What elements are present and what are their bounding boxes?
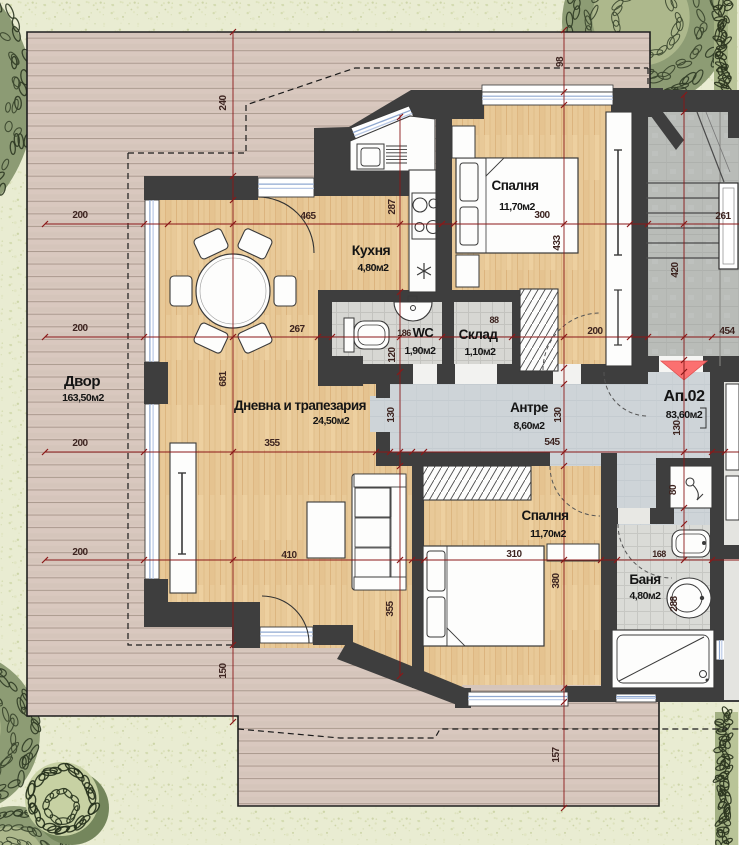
svg-text:80: 80 <box>668 484 679 495</box>
svg-text:433: 433 <box>552 234 563 250</box>
svg-text:545: 545 <box>544 437 560 448</box>
svg-text:Спалня: Спалня <box>491 178 538 193</box>
svg-text:240: 240 <box>218 94 229 110</box>
svg-text:380: 380 <box>551 572 562 588</box>
svg-text:130: 130 <box>553 406 564 422</box>
svg-text:Двор: Двор <box>64 373 100 390</box>
svg-text:267: 267 <box>289 324 305 335</box>
svg-text:150: 150 <box>218 662 229 678</box>
svg-text:4,80м2: 4,80м2 <box>629 590 661 602</box>
svg-text:200: 200 <box>72 438 88 449</box>
svg-text:98: 98 <box>555 56 566 67</box>
svg-text:11,70м2: 11,70м2 <box>499 201 535 213</box>
svg-text:420: 420 <box>670 261 681 277</box>
svg-text:310: 310 <box>506 549 522 560</box>
svg-text:Склад: Склад <box>459 327 499 342</box>
svg-text:163,50м2: 163,50м2 <box>62 392 104 404</box>
svg-text:465: 465 <box>300 211 316 222</box>
svg-text:Дневна и трапезария: Дневна и трапезария <box>234 398 366 413</box>
svg-text:300: 300 <box>534 210 550 221</box>
svg-text:Ап.02: Ап.02 <box>664 388 706 405</box>
svg-text:157: 157 <box>551 746 562 762</box>
svg-text:288: 288 <box>669 595 680 611</box>
svg-text:355: 355 <box>385 600 396 616</box>
svg-text:1,90м2: 1,90м2 <box>404 345 436 357</box>
svg-text:24,50м2: 24,50м2 <box>313 415 350 427</box>
svg-text:200: 200 <box>587 326 603 337</box>
svg-text:261: 261 <box>715 211 731 222</box>
svg-text:88: 88 <box>489 315 499 325</box>
svg-text:410: 410 <box>281 550 297 561</box>
svg-text:200: 200 <box>72 323 88 334</box>
svg-text:Кухня: Кухня <box>352 242 391 258</box>
svg-text:130: 130 <box>386 406 397 422</box>
svg-text:Спалня: Спалня <box>521 508 568 523</box>
svg-text:200: 200 <box>72 547 88 558</box>
svg-text:83,60м2: 83,60м2 <box>666 409 703 421</box>
svg-text:454: 454 <box>719 326 735 337</box>
svg-text:130: 130 <box>672 419 683 435</box>
svg-text:4,80м2: 4,80м2 <box>357 262 389 274</box>
svg-text:Баня: Баня <box>629 572 660 587</box>
svg-text:11,70м2: 11,70м2 <box>530 528 566 540</box>
svg-text:168: 168 <box>652 549 666 559</box>
svg-text:200: 200 <box>72 210 88 221</box>
svg-text:287: 287 <box>387 198 398 214</box>
svg-text:1,10м2: 1,10м2 <box>464 346 496 358</box>
svg-text:120: 120 <box>387 346 398 362</box>
svg-text:Антре: Антре <box>510 400 549 415</box>
svg-text:186: 186 <box>397 328 411 338</box>
svg-text:681: 681 <box>218 370 229 386</box>
svg-text:WC: WC <box>413 325 435 340</box>
svg-text:8,60м2: 8,60м2 <box>513 420 545 432</box>
svg-text:355: 355 <box>264 438 280 449</box>
